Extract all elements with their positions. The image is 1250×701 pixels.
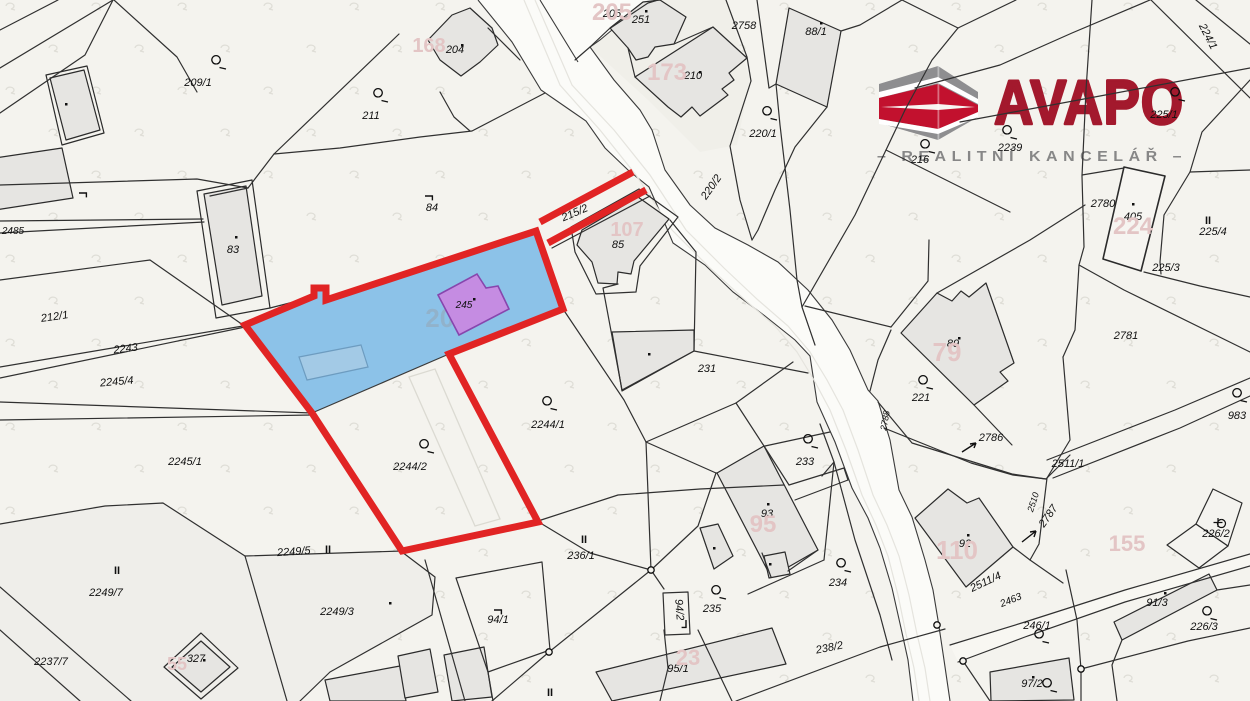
svg-text:88/1: 88/1 (805, 26, 826, 38)
svg-text:226/2: 226/2 (1201, 528, 1230, 540)
svg-text:AVAPO: AVAPO (994, 68, 1184, 138)
svg-text:II: II (581, 534, 587, 546)
svg-text:2249/5: 2249/5 (276, 545, 312, 559)
svg-text:216: 216 (910, 154, 930, 166)
svg-text:107: 107 (610, 219, 643, 241)
svg-text:84: 84 (426, 202, 438, 214)
svg-text:233: 233 (795, 456, 815, 468)
svg-text:II: II (1205, 215, 1211, 227)
svg-text:225/4: 225/4 (1198, 226, 1227, 238)
svg-text:94/1: 94/1 (487, 614, 508, 626)
svg-text:168: 168 (412, 35, 445, 57)
svg-text:55: 55 (167, 654, 187, 674)
svg-text:226/3: 226/3 (1189, 621, 1218, 633)
svg-text:221: 221 (911, 392, 930, 404)
svg-text:205: 205 (592, 0, 632, 26)
svg-text:2245/1: 2245/1 (167, 456, 202, 468)
svg-text:2781: 2781 (1113, 330, 1138, 342)
svg-text:225/3: 225/3 (1151, 262, 1180, 274)
svg-text:2239: 2239 (997, 142, 1022, 154)
svg-text:2237/7: 2237/7 (33, 656, 69, 668)
svg-text:173: 173 (647, 59, 687, 86)
svg-text:II: II (114, 565, 120, 577)
svg-text:97/2: 97/2 (1021, 678, 1042, 690)
svg-text:209/1: 209/1 (183, 77, 212, 89)
svg-text:110: 110 (936, 535, 978, 565)
svg-text:983: 983 (1228, 410, 1247, 422)
svg-text:2786: 2786 (978, 432, 1004, 444)
svg-text:225/1: 225/1 (1149, 109, 1178, 121)
svg-text:95: 95 (750, 511, 777, 538)
svg-text:251: 251 (631, 14, 650, 26)
svg-text:91/3: 91/3 (1146, 597, 1168, 609)
svg-text:2758: 2758 (731, 20, 757, 32)
svg-text:83: 83 (227, 244, 240, 256)
svg-text:234: 234 (828, 577, 847, 589)
svg-text:236/1: 236/1 (566, 550, 595, 562)
svg-text:235: 235 (702, 603, 722, 615)
svg-text:2244/2: 2244/2 (392, 461, 427, 473)
svg-text:23: 23 (676, 645, 700, 670)
svg-text:224: 224 (1113, 213, 1154, 240)
svg-text:220/1: 220/1 (748, 128, 777, 140)
svg-text:II: II (547, 687, 553, 699)
svg-text:94/2: 94/2 (672, 599, 685, 621)
svg-text:2249/3: 2249/3 (319, 606, 355, 618)
svg-text:2485: 2485 (1, 226, 25, 237)
svg-text:2780: 2780 (1090, 198, 1116, 210)
svg-text:155: 155 (1109, 531, 1146, 556)
svg-text:2511/1: 2511/1 (1051, 458, 1085, 470)
svg-text:2249/7: 2249/7 (88, 587, 124, 599)
svg-text:2244/1: 2244/1 (530, 419, 565, 431)
svg-text:II: II (325, 544, 331, 556)
svg-text:211: 211 (361, 110, 380, 122)
svg-text:79: 79 (933, 337, 962, 367)
svg-text:245: 245 (455, 300, 473, 311)
svg-text:231: 231 (697, 363, 716, 375)
